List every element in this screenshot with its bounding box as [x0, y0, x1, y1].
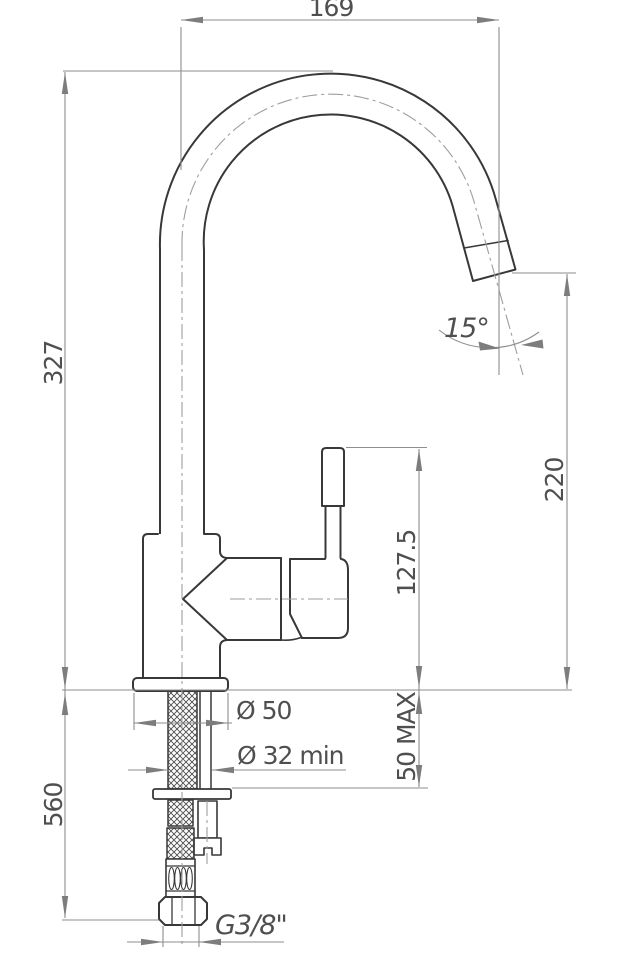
braided-hose [167, 828, 194, 859]
label-connection-thread: G3/8" [215, 910, 287, 941]
dimension-labels: 169 327 560 220 127.5 50 MAX Ø 50 Ø 32 m… [39, 0, 569, 941]
label-outlet-angle: 15° [444, 313, 489, 344]
handle-grip [322, 448, 344, 506]
label-outlet-height: 220 [540, 458, 569, 503]
label-base-diameter: Ø 50 [236, 696, 292, 725]
hose-hex-nut [159, 897, 207, 925]
body [143, 534, 348, 679]
mounting-pipes [200, 691, 211, 789]
mounting-washer [153, 789, 231, 799]
label-spout-reach: 169 [309, 0, 354, 22]
shank-lower [168, 800, 193, 826]
base-flange [133, 678, 228, 691]
handle [322, 448, 344, 558]
dimension-lines [62, 20, 576, 947]
handle-rod [326, 506, 341, 558]
label-mounting-hole-diameter: Ø 32 min [237, 741, 344, 770]
label-handle-height: 127.5 [392, 530, 421, 597]
drawing-svg: 169 327 560 220 127.5 50 MAX Ø 50 Ø 32 m… [0, 0, 618, 970]
body-fill [143, 534, 348, 679]
faucet-technical-drawing: 169 327 560 220 127.5 50 MAX Ø 50 Ø 32 m… [0, 0, 618, 970]
faucet-outline [133, 74, 516, 925]
label-spout-height: 327 [39, 341, 68, 386]
dimension-arrows [62, 17, 570, 945]
label-below-deck-length: 560 [39, 783, 68, 828]
label-deck-thickness-max: 50 MAX [392, 691, 421, 781]
